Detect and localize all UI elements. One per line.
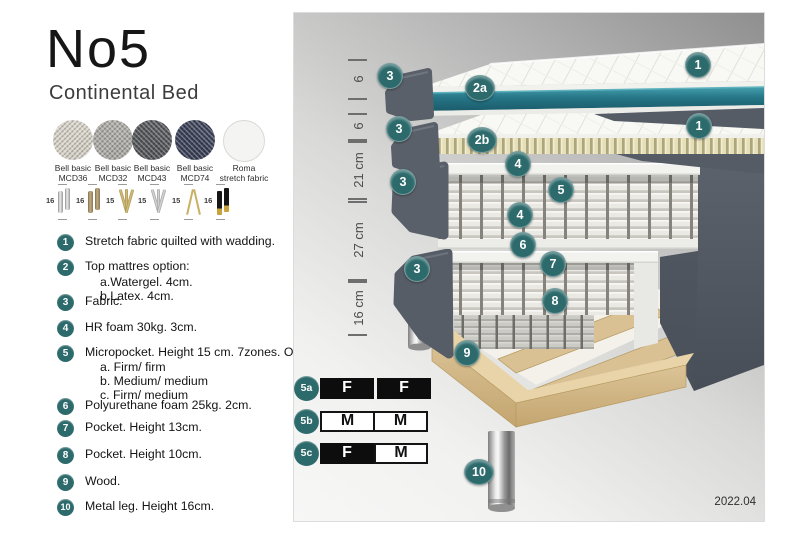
firmness-cell: M bbox=[374, 411, 428, 432]
callout-5: 5 bbox=[548, 177, 574, 203]
legend-item-subtext: b. Medium/ medium bbox=[100, 374, 208, 388]
leg-gold-hairpin-icon bbox=[184, 188, 202, 216]
fabric-swatch bbox=[223, 120, 265, 162]
legend-item-text: Pocket. Height 13cm. bbox=[85, 420, 202, 434]
leg-height-label: 16 bbox=[76, 196, 84, 205]
legend-item-text: Fabric. bbox=[85, 294, 123, 308]
dimension-tick bbox=[118, 219, 127, 220]
fabric-swatch bbox=[175, 120, 215, 160]
leg-height-label: 15 bbox=[106, 196, 114, 205]
firmness-cell: M bbox=[320, 411, 374, 432]
dimension-tick bbox=[150, 184, 159, 185]
infographic-page: No5 Continental Bed Bell basicMCD36 Bell… bbox=[0, 0, 800, 533]
leg-chrome-cylinder-icon bbox=[58, 188, 76, 216]
legend-number-badge: 6 bbox=[57, 398, 74, 415]
firmness-cell: F bbox=[320, 378, 374, 399]
legend-item-text: Polyurethane foam 25kg. 2cm. bbox=[85, 398, 252, 412]
leg-silver-twist-icon bbox=[150, 188, 168, 216]
callout-10: 10 bbox=[464, 459, 494, 485]
legend-item-subtext: a.Watergel. 4cm. bbox=[100, 275, 193, 289]
callout-1: 1 bbox=[685, 52, 711, 78]
leg-height-label: 16 bbox=[46, 196, 54, 205]
fabric-swatch-label: Romastretch fabric bbox=[216, 163, 272, 183]
leg-gold-twist-icon bbox=[118, 188, 136, 216]
callout-9: 9 bbox=[454, 340, 480, 366]
micropocket-layer bbox=[436, 163, 700, 249]
leg-option: 16 bbox=[204, 182, 235, 222]
legend-item-text: HR foam 30kg. 3cm. bbox=[85, 320, 197, 334]
leg-option: 16 bbox=[46, 182, 77, 222]
bed-diagram-panel: 5a F F 5b M M 5c F M 2022.04 6621 cm27 c… bbox=[293, 12, 765, 522]
legend-number-badge: 9 bbox=[57, 474, 74, 491]
fabric-swatch bbox=[53, 120, 93, 160]
legend-item-text: Stretch fabric quilted with wadding. bbox=[85, 234, 275, 248]
dimension-tick bbox=[88, 219, 97, 220]
legend-number-badge: 2 bbox=[57, 259, 74, 276]
callout-3: 3 bbox=[377, 63, 403, 89]
firmness-row-5c: 5c F M bbox=[294, 441, 428, 465]
callout-4: 4 bbox=[505, 151, 531, 177]
scale-tick bbox=[348, 201, 367, 203]
firmness-row-5a: 5a F F bbox=[294, 376, 431, 400]
scale-label: 16 cm bbox=[350, 272, 368, 344]
leg-option: 15 bbox=[106, 182, 137, 222]
callout-3: 3 bbox=[390, 169, 416, 195]
page-subtitle: Continental Bed bbox=[49, 82, 199, 105]
callout-4: 4 bbox=[507, 202, 533, 228]
legend-item-text: Pocket. Height 10cm. bbox=[85, 447, 202, 461]
leg-bronze-cylinder-icon bbox=[88, 188, 106, 216]
dimension-tick bbox=[184, 184, 193, 185]
leg-option: 15 bbox=[172, 182, 203, 222]
legend-number-badge: 3 bbox=[57, 294, 74, 311]
leg-height-label: 15 bbox=[138, 196, 146, 205]
legend-item-text: Top mattres option: bbox=[85, 259, 190, 273]
fabric-swatch bbox=[132, 120, 172, 160]
firmness-cell: F bbox=[320, 443, 374, 464]
dimension-tick bbox=[118, 184, 127, 185]
fabric-swatch bbox=[93, 120, 133, 160]
firmness-cell: M bbox=[374, 443, 428, 464]
legend-number-badge: 1 bbox=[57, 234, 74, 251]
leg-option: 16 bbox=[76, 182, 107, 222]
firmness-cells: F M bbox=[320, 443, 428, 464]
scale-label: 21 cm bbox=[350, 134, 368, 206]
dimension-tick bbox=[184, 219, 193, 220]
callout-3: 3 bbox=[404, 256, 430, 282]
leg-black-gold-icon bbox=[216, 188, 234, 216]
legend-item-text: Micropocket. Height 15 cm. 7zones. Optio… bbox=[85, 345, 324, 359]
firmness-cells: M M bbox=[320, 411, 428, 432]
dimension-tick bbox=[58, 184, 67, 185]
fabric-swatch-label: Bell basicMCD74 bbox=[169, 163, 221, 183]
callout-1: 1 bbox=[686, 113, 712, 139]
firmness-badge: 5c bbox=[294, 441, 319, 466]
leg-option: 15 bbox=[138, 182, 169, 222]
dimension-tick bbox=[88, 184, 97, 185]
dimension-tick bbox=[150, 219, 159, 220]
legend-number-badge: 4 bbox=[57, 320, 74, 337]
callout-6: 6 bbox=[510, 232, 536, 258]
page-title: No5 bbox=[46, 18, 151, 80]
dimension-tick bbox=[216, 184, 225, 185]
legend-item-text: Wood. bbox=[85, 474, 120, 488]
firmness-badge: 5b bbox=[294, 409, 319, 434]
scale-label: 27 cm bbox=[350, 204, 368, 276]
legend-number-badge: 8 bbox=[57, 447, 74, 464]
legend-number-badge: 5 bbox=[57, 345, 74, 362]
firmness-row-5b: 5b M M bbox=[294, 409, 428, 433]
legend-item-text: Metal leg. Height 16cm. bbox=[85, 499, 214, 513]
leg-height-label: 15 bbox=[172, 196, 180, 205]
callout-3: 3 bbox=[386, 116, 412, 142]
firmness-cell: F bbox=[377, 378, 431, 399]
callout-2a: 2a bbox=[465, 75, 495, 101]
legend-number-badge: 7 bbox=[57, 420, 74, 437]
firmness-cells: F F bbox=[320, 378, 431, 399]
callout-8: 8 bbox=[542, 288, 568, 314]
firmness-badge: 5a bbox=[294, 376, 319, 401]
callout-2b: 2b bbox=[467, 127, 497, 153]
leg-height-label: 16 bbox=[204, 196, 212, 205]
version-label: 2022.04 bbox=[684, 496, 756, 508]
dimension-tick bbox=[216, 219, 225, 220]
legend-number-badge: 10 bbox=[57, 499, 74, 516]
callout-7: 7 bbox=[540, 251, 566, 277]
dimension-tick bbox=[58, 219, 67, 220]
legend-item-subtext: a. Firm/ firm bbox=[100, 360, 166, 374]
